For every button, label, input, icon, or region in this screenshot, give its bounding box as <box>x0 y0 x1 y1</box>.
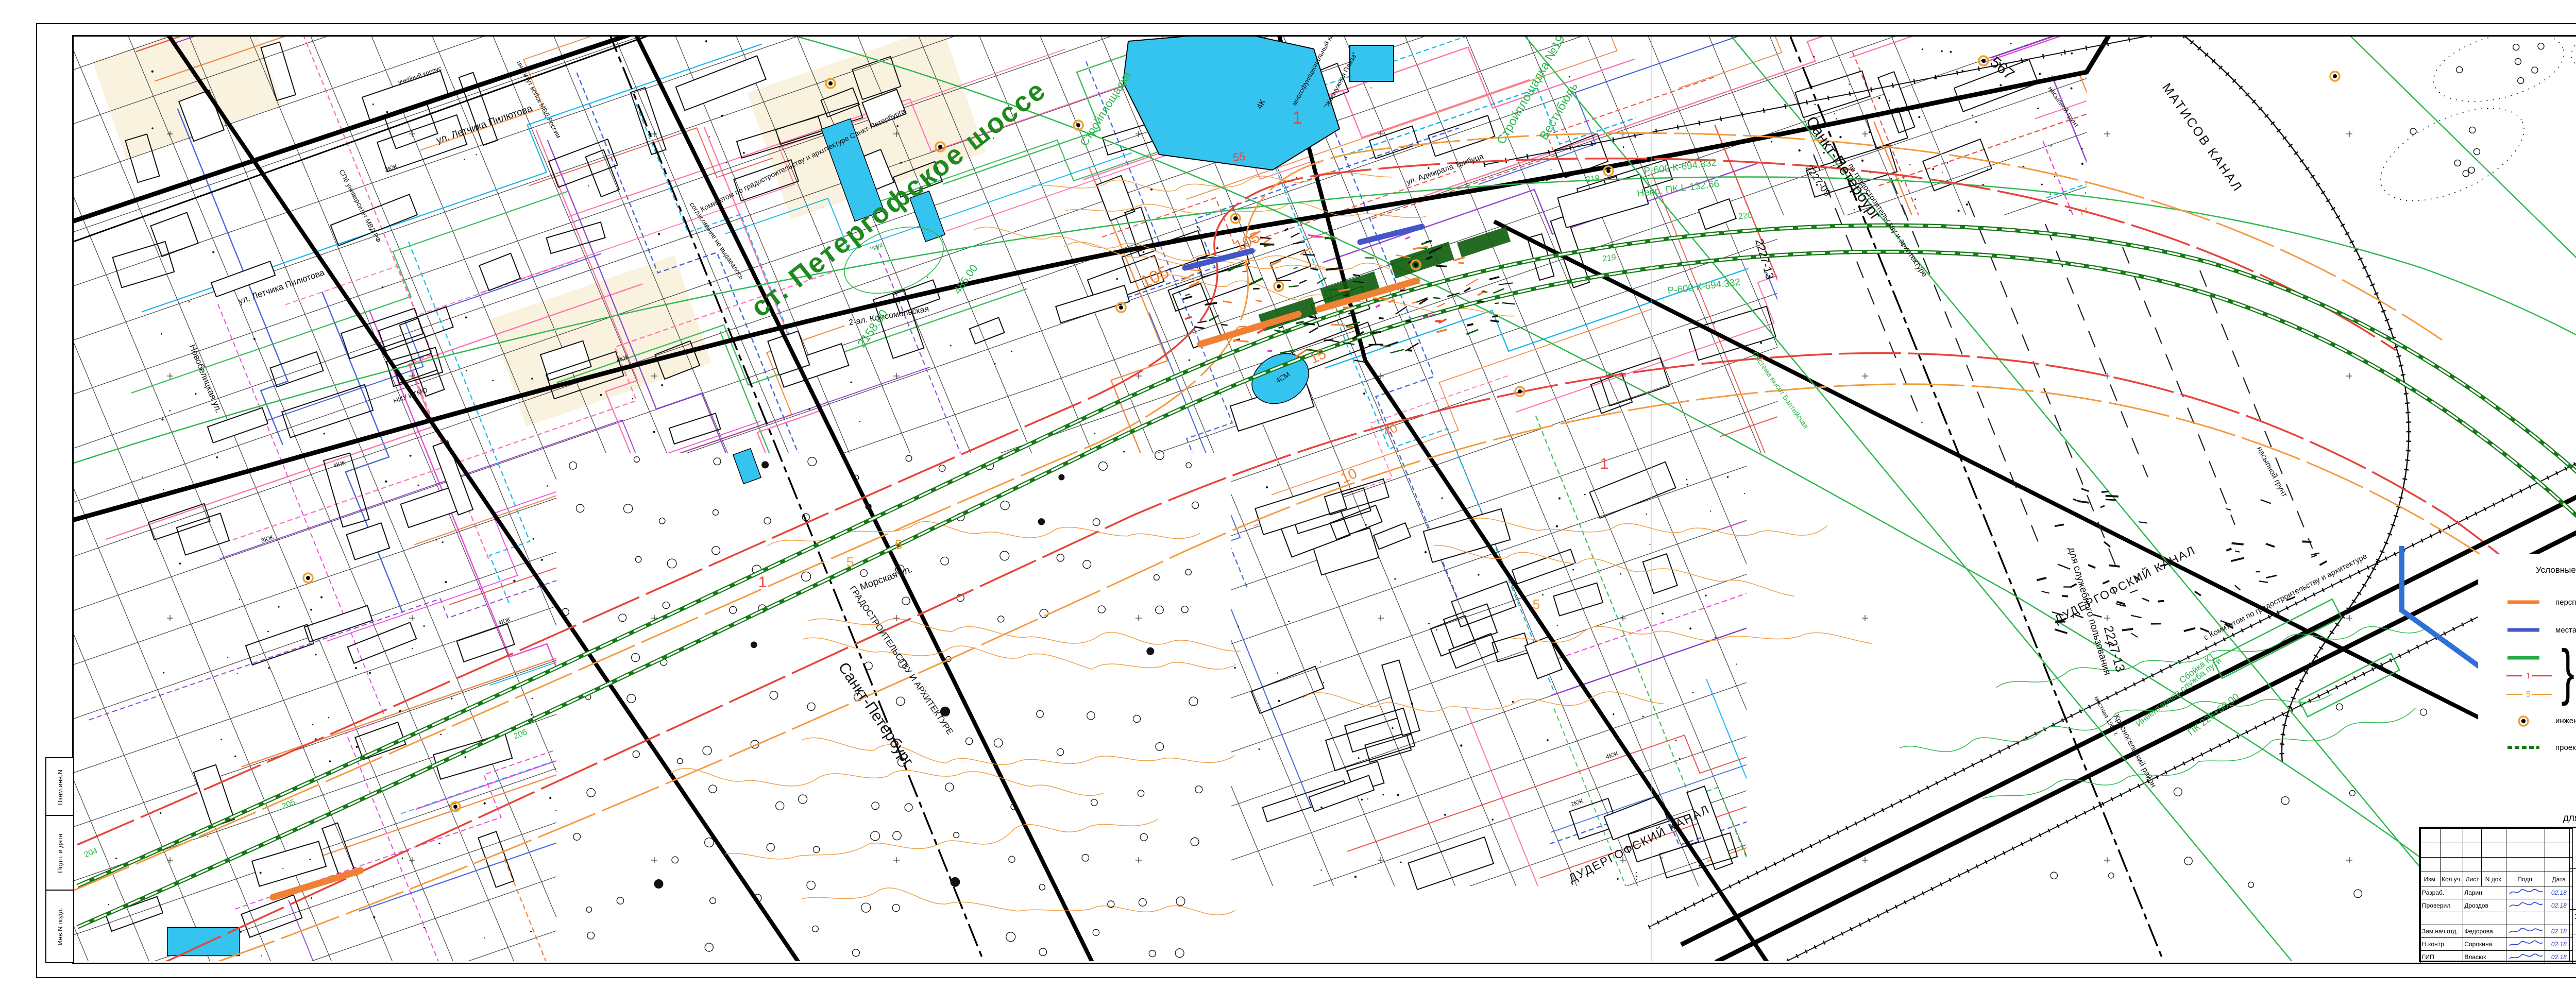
document-number: ПМ-23-0-сп14130-ИГ <box>2569 828 2576 868</box>
signature <box>2506 925 2545 938</box>
title-block: Изм.Кол.уч.ЛистN док.Подп.Дата Разраб. Л… <box>2419 827 2576 962</box>
revision-cell <box>2421 843 2441 858</box>
legend-marker-line-icon <box>2506 599 2540 608</box>
revision-cell <box>2421 858 2441 872</box>
revision-cell <box>2482 858 2506 872</box>
legend-marker-mulde-group-icon: 5 <box>2506 690 2553 701</box>
stamp-vzam-inv: Взам.инв.N <box>45 757 74 817</box>
legend-brace: } <box>2561 637 2574 708</box>
revision-cell <box>2441 829 2463 843</box>
sig-date-cell: 02.18 <box>2545 938 2573 951</box>
sig-col-header: Подп. <box>2506 872 2545 886</box>
revision-cell <box>2506 829 2545 843</box>
revision-cell <box>2421 829 2441 843</box>
sig-date-cell: 02.18 <box>2545 951 2573 964</box>
legend-item-label: перспективные станции метро <box>2555 598 2576 607</box>
revision-cell <box>2441 843 2463 858</box>
signature-table: Изм.Кол.уч.ЛистN док.Подп.Дата Разраб. Л… <box>2420 828 2573 964</box>
signature-date: 02.18 <box>2551 941 2567 948</box>
sig-role: Н.контр. <box>2421 938 2463 951</box>
signature <box>2506 938 2545 951</box>
signature <box>2506 912 2545 925</box>
svg-text:5: 5 <box>2526 690 2531 698</box>
sig-role: Зам.нач.отд. <box>2421 925 2463 938</box>
revision-cell <box>2463 843 2482 858</box>
sig-date-cell: 02.18 <box>2545 886 2573 899</box>
sig-col-header: Изм. <box>2421 872 2441 886</box>
sig-col-header: Кол.уч. <box>2441 872 2463 886</box>
sig-role: ГИП <box>2421 951 2463 964</box>
sig-name <box>2463 912 2506 925</box>
stamp-label: Инв.N подл. <box>56 908 64 945</box>
revision-cell <box>2463 829 2482 843</box>
legend: Условные обозначения: перспективные стан… <box>2478 554 2576 773</box>
drawing-frame <box>72 35 2576 964</box>
signature-date: 02.18 <box>2551 902 2567 909</box>
signature <box>2506 899 2545 912</box>
signature-date: 02.18 <box>2551 928 2567 935</box>
svg-text:1: 1 <box>2526 672 2531 680</box>
sig-name: Ларин <box>2463 886 2506 899</box>
sig-date-cell: 02.18 <box>2545 925 2573 938</box>
signature-date: 02.18 <box>2551 889 2567 896</box>
legend-item-label: проектируемая линия метрополитена <box>2555 743 2576 752</box>
stamp-label: Взам.инв.N <box>56 770 64 805</box>
sig-date-cell: 02.18 <box>2545 899 2573 912</box>
drawing-sheet: ст. Петергофское шоссемногофункциональны… <box>0 0 2576 990</box>
revision-cell <box>2545 858 2573 872</box>
revision-cell <box>2545 843 2573 858</box>
sig-col-header: N док. <box>2482 872 2506 886</box>
legend-item-label: места размещения вестибюлей <box>2555 626 2576 635</box>
sig-name: Дроздов <box>2463 899 2506 912</box>
section-description: Участок от ПК 204+00,00 до ПК 227+00,00 … <box>2569 909 2576 934</box>
revision-cell <box>2506 843 2545 858</box>
signature-date: 02.18 <box>2551 953 2567 961</box>
legend-marker-line-icon <box>2506 626 2540 636</box>
legend-marker-dashed-icon <box>2506 744 2540 753</box>
sig-role <box>2421 912 2463 925</box>
revision-cell <box>2506 858 2545 872</box>
legend-marker-borehole-icon <box>2506 715 2540 730</box>
sig-col-header: Дата <box>2545 872 2573 886</box>
revision-signature-table: Изм.Кол.уч.ЛистN док.Подп.Дата Разраб. Л… <box>2420 828 2573 964</box>
legend-item-label: инженерно геологическая скважина <box>2555 716 2576 725</box>
sig-name: Федорова <box>2463 925 2506 938</box>
signature <box>2506 886 2545 899</box>
stamp-podp-data: Подп. и дата <box>45 815 74 892</box>
legend-title: Условные обозначения: <box>2536 565 2576 575</box>
legend-marker-mulde-group-icon: 1 <box>2506 672 2553 682</box>
project-title: Строительство участка Красносельско-Кали… <box>2569 868 2576 909</box>
revision-cell <box>2482 829 2506 843</box>
revision-cell <box>2545 829 2573 843</box>
sig-role: Разраб. <box>2421 886 2463 899</box>
stamp-inv-podl: Инв.N подл. <box>45 890 74 963</box>
sig-name: Власюк <box>2463 951 2506 964</box>
legend-marker-mulde-group-icon <box>2506 654 2540 663</box>
sig-name: Сорокина <box>2463 938 2506 951</box>
sig-role: Проверил <box>2421 899 2463 912</box>
sig-date-cell <box>2545 912 2573 925</box>
variant-block: Вариант 3 Зона влияния строительства на … <box>2569 934 2576 961</box>
revision-cell <box>2482 843 2506 858</box>
revision-cell <box>2441 858 2463 872</box>
classification-label: для служебного пользования <box>2419 812 2576 825</box>
revision-cell <box>2463 858 2482 872</box>
stamp-label: Подп. и дата <box>56 833 64 873</box>
sig-col-header: Лист <box>2463 872 2482 886</box>
signature <box>2506 951 2545 964</box>
